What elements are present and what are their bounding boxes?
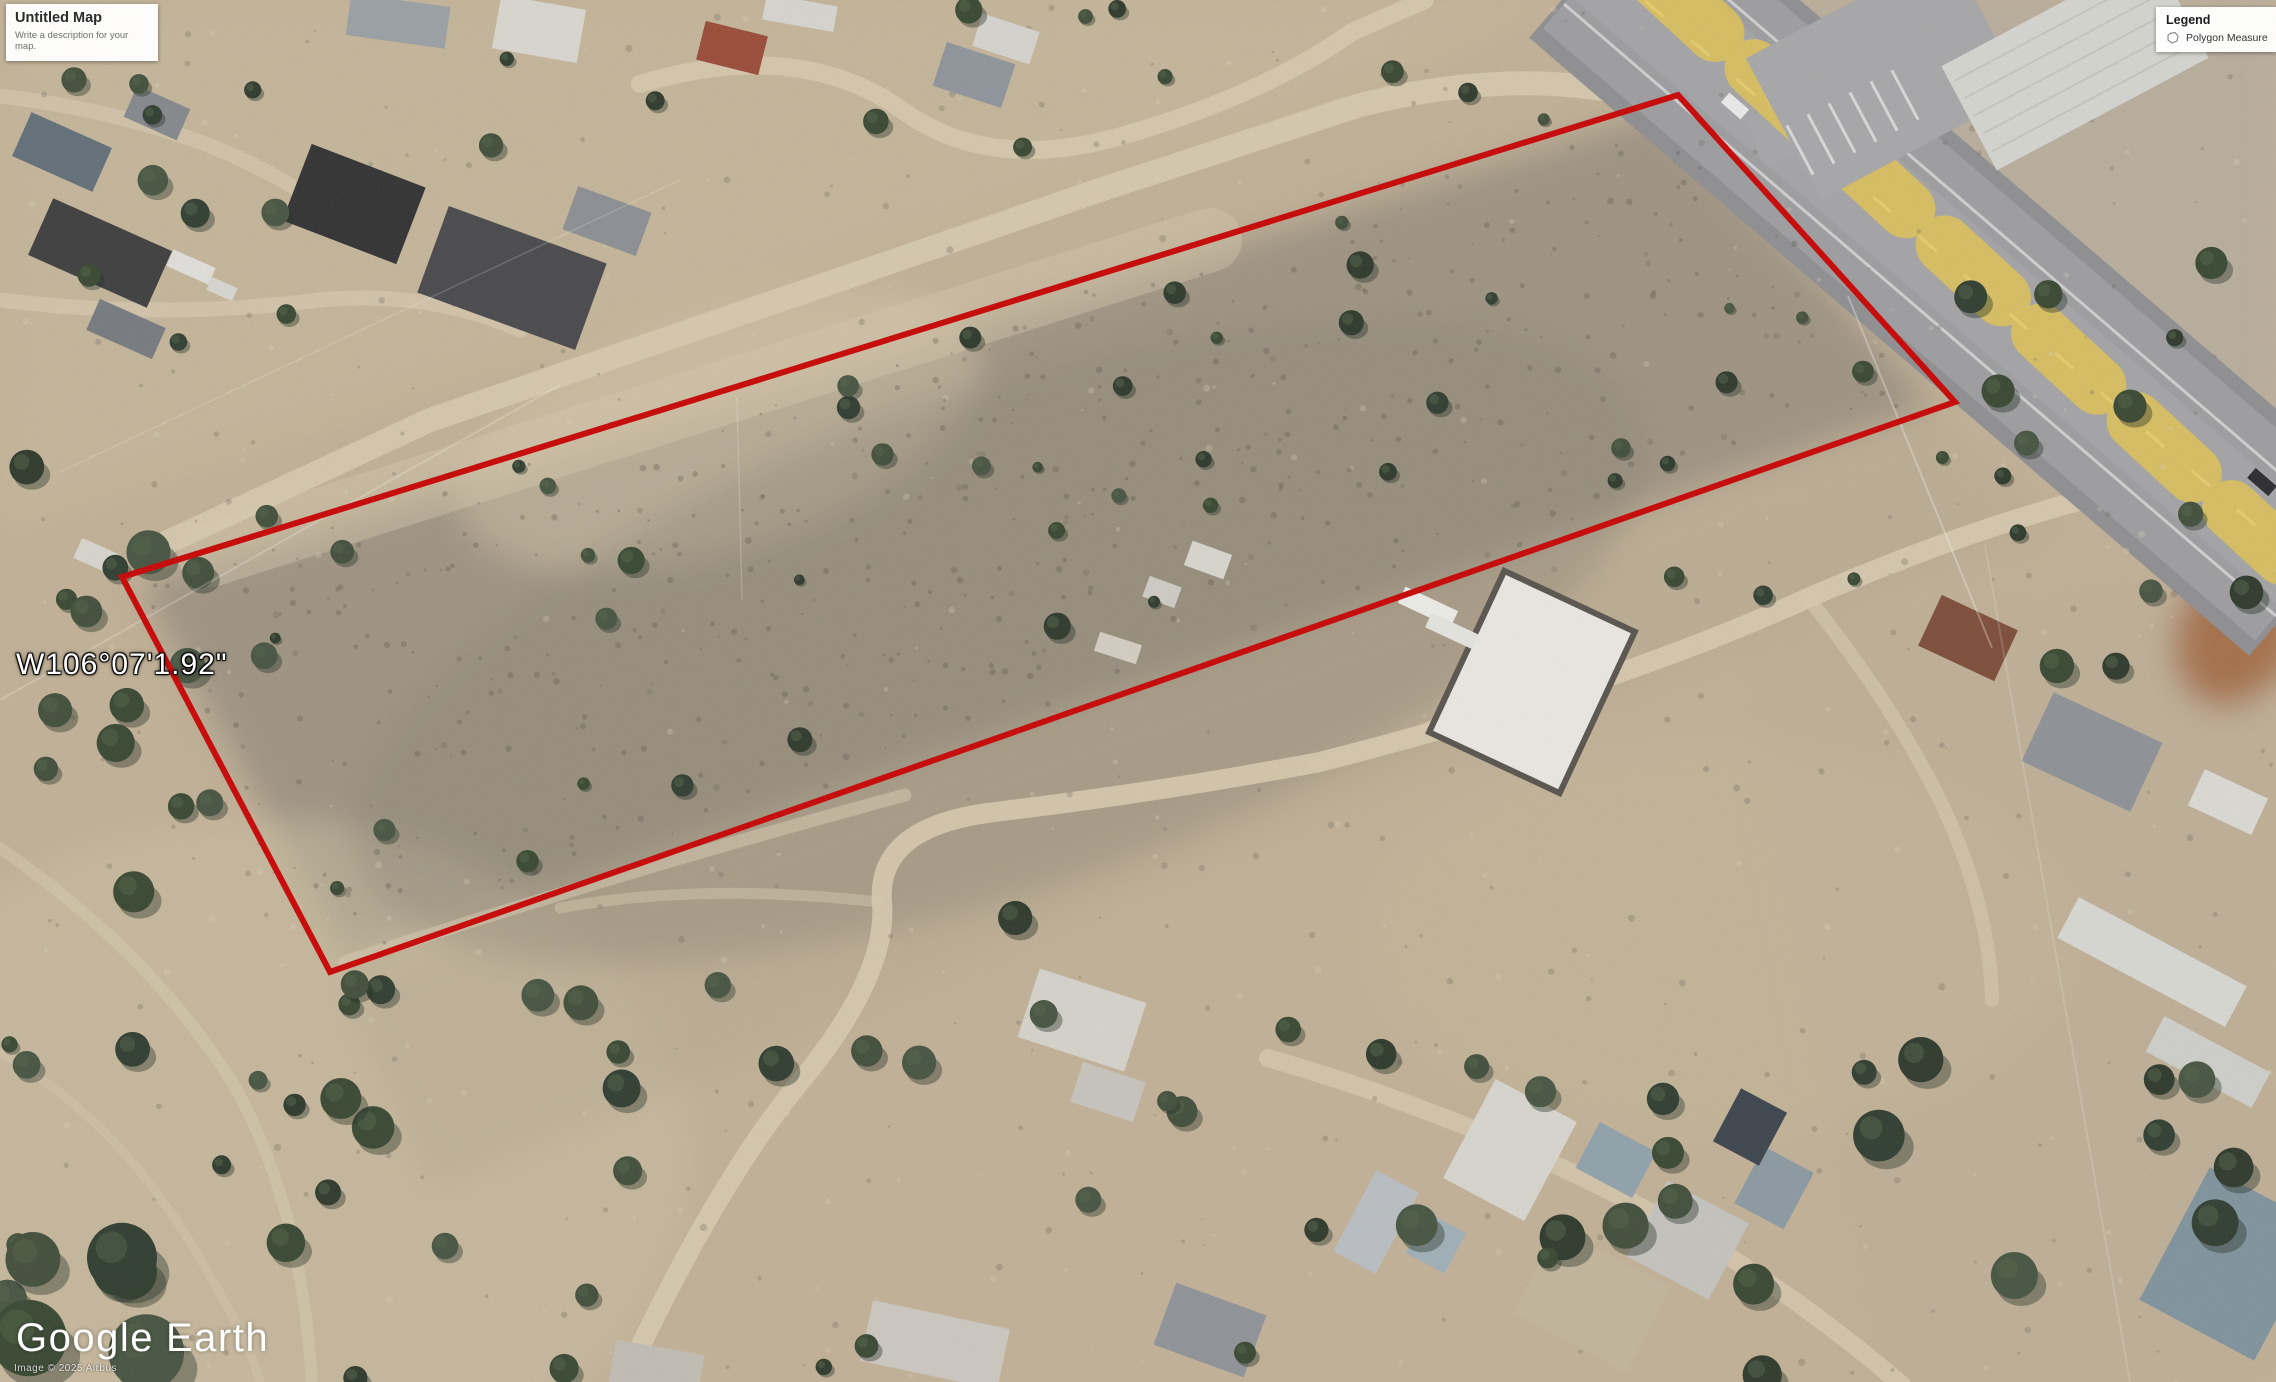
map-description: Write a description for your map. [15, 31, 149, 53]
map-canvas[interactable]: Untitled Map Write a description for you… [0, 0, 2276, 1382]
map-title: Untitled Map [15, 11, 149, 27]
coordinate-label: W106°07'1.92" [16, 648, 228, 682]
logo-word-earth: Earth [166, 1316, 269, 1360]
legend-title: Legend [2166, 13, 2268, 27]
google-earth-logo: GoogleEarth [16, 1316, 269, 1361]
legend-item-polygon-measure[interactable]: Polygon Measure [2166, 31, 2268, 45]
legend-item-label: Polygon Measure [2186, 32, 2268, 44]
satellite-imagery [0, 0, 2276, 1382]
map-info-panel[interactable]: Untitled Map Write a description for you… [6, 4, 158, 61]
imagery-credit: Image © 2025 Airbus [14, 1363, 117, 1374]
logo-word-google: Google [16, 1316, 154, 1360]
legend-panel: Legend Polygon Measure [2156, 7, 2276, 52]
polygon-icon [2166, 31, 2180, 45]
photo-grain [0, 0, 2276, 1382]
